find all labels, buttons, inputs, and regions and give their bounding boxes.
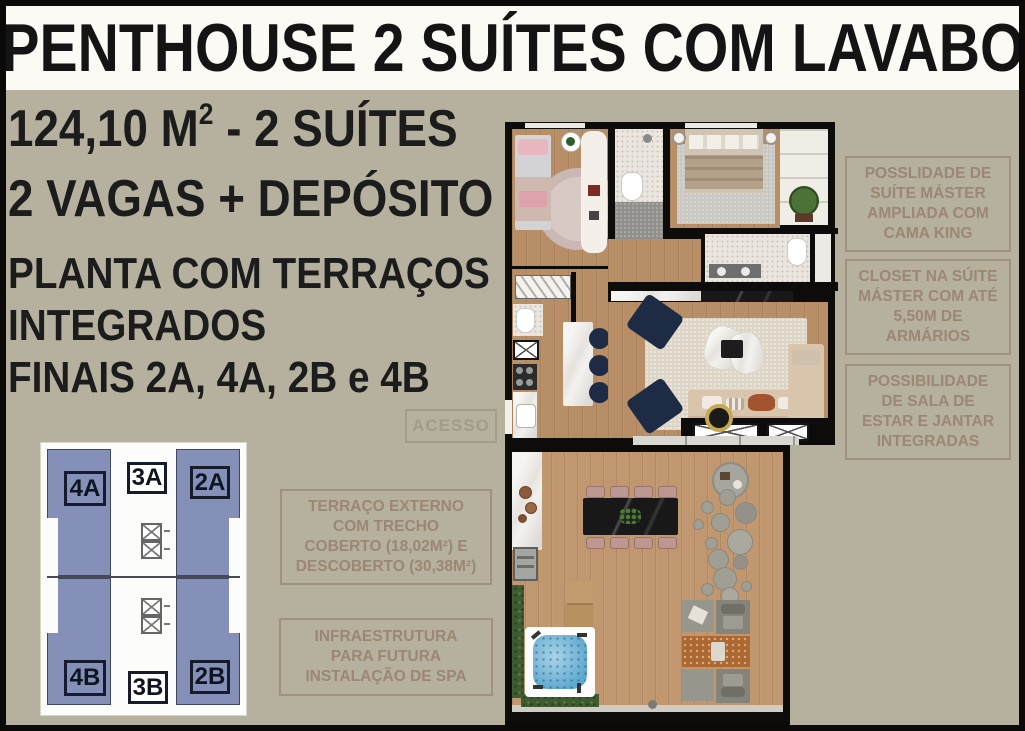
shower-floor (615, 202, 663, 239)
note-line: DESCOBERTO (30,38M²) (296, 557, 477, 577)
dining-chair (658, 537, 677, 549)
pebble (727, 529, 753, 555)
plant-pot (795, 214, 813, 222)
bar-stool (589, 382, 610, 403)
bath-vanity (709, 264, 761, 278)
note-line: INTEGRADAS (877, 432, 979, 452)
outdoor-rug (682, 636, 750, 667)
corridor-floor (608, 239, 701, 288)
window (525, 123, 585, 128)
unit-label-4a: 4A (64, 471, 106, 506)
pebble (719, 489, 736, 506)
lounge-mat (682, 600, 714, 632)
wall (663, 129, 670, 239)
note-line: POSSLIDADE DE (865, 164, 992, 184)
pebble (733, 555, 748, 570)
pebble (701, 501, 714, 514)
plan-note-line1: PLANTA COM TERRAÇOS (8, 248, 490, 300)
burner-icon (526, 367, 533, 374)
unit-label-3b: 3B (128, 671, 168, 704)
area-value: 124,10 M (8, 100, 199, 158)
lounge-seat (723, 674, 743, 686)
pebble (705, 537, 718, 550)
access-label: ACESSO (405, 409, 497, 443)
burner-icon (526, 379, 533, 386)
dining-chair (610, 537, 629, 549)
bowl-icon (525, 502, 537, 514)
entry-door-gap (505, 400, 512, 434)
dining-chair (610, 486, 629, 498)
note-line: DE SALA DE (881, 392, 974, 412)
bed-blanket (685, 155, 763, 189)
dining-chair (658, 486, 677, 498)
pebble (711, 513, 730, 532)
table-item (720, 472, 730, 480)
grill (513, 547, 538, 581)
nightstand-lamp (672, 131, 686, 145)
pebble (693, 519, 704, 530)
burner-icon (516, 379, 523, 386)
terrace-counter (512, 452, 542, 550)
plan-note-block: PLANTA COM TERRAÇOS INTEGRADOS FINAIS 2A… (8, 248, 556, 404)
elevator-icon (141, 523, 162, 541)
note-closet: CLOSET NA SÚITE MÁSTER COM ATÉ 5,50M DE … (845, 259, 1011, 355)
side-table (561, 132, 581, 152)
note-line: COM TRECHO (333, 517, 439, 537)
elevator-icon (141, 541, 162, 559)
spec-block: 124,10 M2 - 2 SUÍTES 2 VAGAS + DEPÓSITO (8, 98, 559, 230)
pebble (741, 581, 752, 592)
lounge-chair (716, 669, 750, 703)
window (685, 123, 757, 128)
toilet (516, 308, 535, 333)
note-line: POSSIBILIDADE (868, 372, 989, 392)
master-bed (685, 129, 763, 193)
note-line: INFRAESTRUTURA (315, 627, 458, 647)
lounge-mat (682, 669, 714, 701)
dining-chair (586, 486, 605, 498)
sliding-door (633, 436, 799, 445)
burner-icon (516, 367, 523, 374)
elevator-arrow-icon (164, 548, 170, 550)
note-line: AMPLIADA COM (867, 204, 989, 224)
sink-icon (741, 267, 750, 276)
hedge-left (512, 585, 524, 698)
table-item (733, 480, 742, 489)
chaise-cushion (792, 350, 820, 365)
wardrobe (515, 275, 571, 299)
note-line: CAMA KING (884, 224, 973, 244)
sink-icon (717, 267, 726, 276)
spa-jet (533, 685, 543, 689)
bowl-icon (519, 486, 532, 499)
spa-water (533, 635, 587, 689)
dining-chair (586, 537, 605, 549)
title-bar: PENTHOUSE 2 SUÍTES COM LAVABO (6, 6, 1019, 90)
bath-window (815, 234, 831, 282)
floor-plan-upper (505, 122, 835, 445)
page-title: PENTHOUSE 2 SUÍTES COM LAVABO (1, 9, 1024, 87)
kitchen-sink (516, 404, 536, 428)
plant-icon (566, 137, 575, 146)
stove (513, 364, 537, 390)
drain-icon (648, 700, 657, 709)
unit-label-2a: 2A (190, 466, 230, 499)
elevator-icon (141, 616, 162, 634)
kitchen-counter (513, 392, 537, 438)
elevator-icon (141, 598, 162, 616)
note-line: ESTAR E JANTAR (862, 412, 994, 432)
spa-step (567, 581, 593, 605)
note-line: COBERTO (18,02M²) E (304, 537, 467, 557)
elevator-arrow-icon (164, 530, 170, 532)
toilet (787, 238, 807, 266)
dining-chair (634, 486, 653, 498)
bed-pillows (689, 135, 759, 149)
note-line: 5,50M DE (894, 307, 963, 327)
spa-jet (577, 633, 587, 637)
floor-split-line (47, 576, 240, 578)
floor-lamp-gold (705, 404, 733, 432)
note-line: SUÍTE MÁSTER (870, 184, 985, 204)
bed-throw (519, 191, 547, 207)
grill-line (517, 556, 534, 559)
note-terrace: TERRAÇO EXTERNO COM TRECHO COBERTO (18,0… (280, 489, 492, 585)
desk-item (589, 211, 599, 220)
bed-pillow (518, 139, 548, 155)
spa-step (565, 605, 593, 627)
cabinet-icon (513, 340, 539, 360)
grill-line (517, 565, 534, 568)
elevator-arrow-icon (164, 623, 170, 625)
note-line: INSTALAÇÃO DE SPA (305, 667, 466, 687)
lounge-chair (716, 600, 750, 634)
lounge-back (721, 687, 745, 697)
wall (608, 282, 838, 291)
note-spa-infra: INFRAESTRUTURA PARA FUTURA INSTALAÇÃO DE… (279, 618, 493, 696)
counter-dark (701, 291, 793, 302)
plant (789, 186, 819, 216)
lounge-back (721, 604, 745, 614)
spa-jet (577, 683, 581, 693)
suite2-bed (515, 135, 551, 230)
desk-books (588, 185, 600, 196)
note-master-king: POSSLIDADE DE SUÍTE MÁSTER AMPLIADA COM … (845, 156, 1011, 252)
bar-stool (589, 328, 610, 349)
sofa-pillow-orange (748, 394, 775, 411)
elevator-arrow-icon (164, 605, 170, 607)
note-line: TERRAÇO EXTERNO (308, 497, 464, 517)
lounge-seat (723, 616, 743, 629)
note-line: ARMÁRIOS (886, 327, 970, 347)
bowl-icon (518, 514, 527, 523)
unit-label-2b: 2B (190, 660, 230, 694)
plan-note-line2: INTEGRADOS (8, 300, 490, 352)
plan-note-line3: FINAIS 2A, 4A, 2B e 4B (8, 352, 490, 404)
toilet (621, 172, 643, 201)
area-suites: - 2 SUÍTES (213, 100, 457, 158)
note-living-dining: POSSIBILIDADE DE SALA DE ESTAR E JANTAR … (845, 364, 1011, 460)
rug-tray (711, 642, 725, 661)
pebble (735, 502, 757, 524)
spa-frame (525, 627, 595, 697)
note-line: MÁSTER COM ATÉ (858, 287, 998, 307)
area-sup: 2 (199, 98, 214, 131)
sofa-chaise (788, 344, 824, 428)
note-line: CLOSET NA SÚITE (859, 267, 998, 287)
lounge-cushion (688, 605, 708, 624)
pebble (701, 583, 714, 596)
dining-chair (634, 537, 653, 549)
unit-label-3a: 3A (127, 462, 167, 494)
key-plan: 4A 3A 2A 4B 3B 2B (40, 442, 247, 716)
key-plan-inner: 4A 3A 2A 4B 3B 2B (47, 449, 240, 709)
unit-label-4b: 4B (64, 660, 106, 696)
table-plant (619, 508, 641, 524)
bar-stool (589, 355, 610, 376)
parking-line: 2 VAGAS + DEPÓSITO (8, 168, 493, 230)
area-line: 124,10 M2 - 2 SUÍTES (8, 98, 493, 168)
suite2-desk (581, 131, 607, 253)
shower-head-icon (643, 134, 652, 143)
coffee-tray (721, 340, 743, 358)
nightstand-lamp (764, 131, 778, 145)
floor-plan-terrace (505, 445, 790, 725)
note-line: PARA FUTURA (331, 647, 441, 667)
